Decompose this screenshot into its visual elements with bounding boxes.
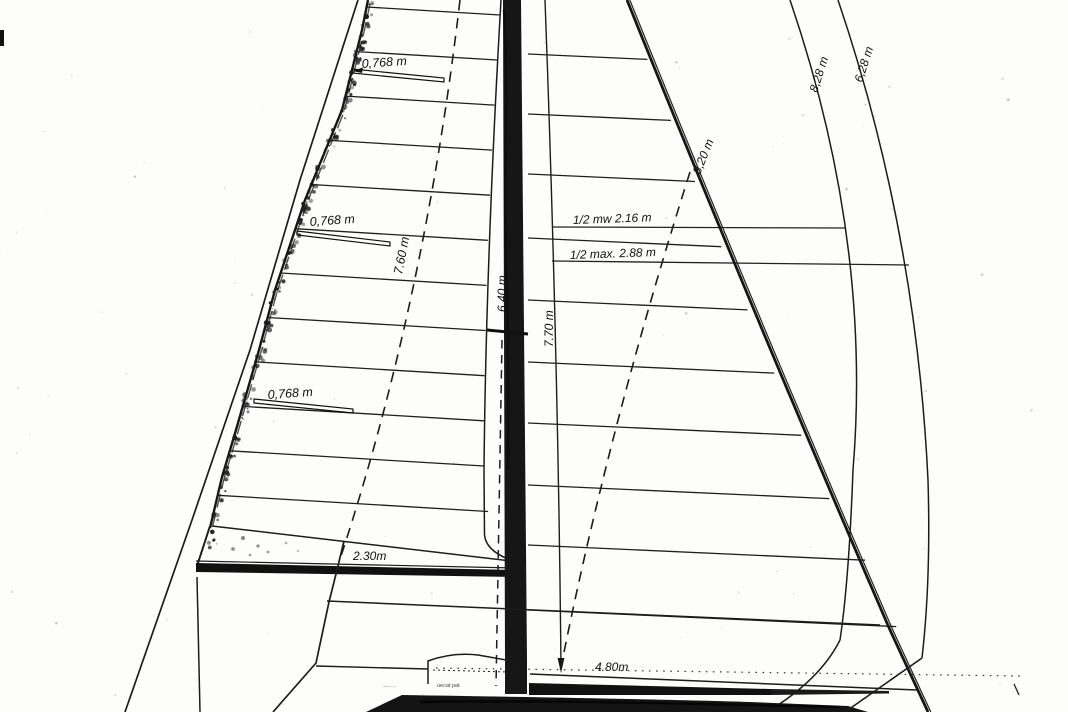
svg-text:...... ..: ...... .. [382, 683, 396, 689]
svg-text:1/2 mw 2.16 m: 1/2 mw 2.16 m [573, 210, 652, 227]
svg-text:7.70 m: 7.70 m [542, 310, 556, 347]
svg-text:6.40 m: 6.40 m [495, 275, 509, 312]
svg-text:4.80m: 4.80m [595, 660, 628, 674]
svg-text:uecat pat: uecat pat [437, 683, 460, 689]
svg-text:2.30m: 2.30m [352, 549, 386, 563]
